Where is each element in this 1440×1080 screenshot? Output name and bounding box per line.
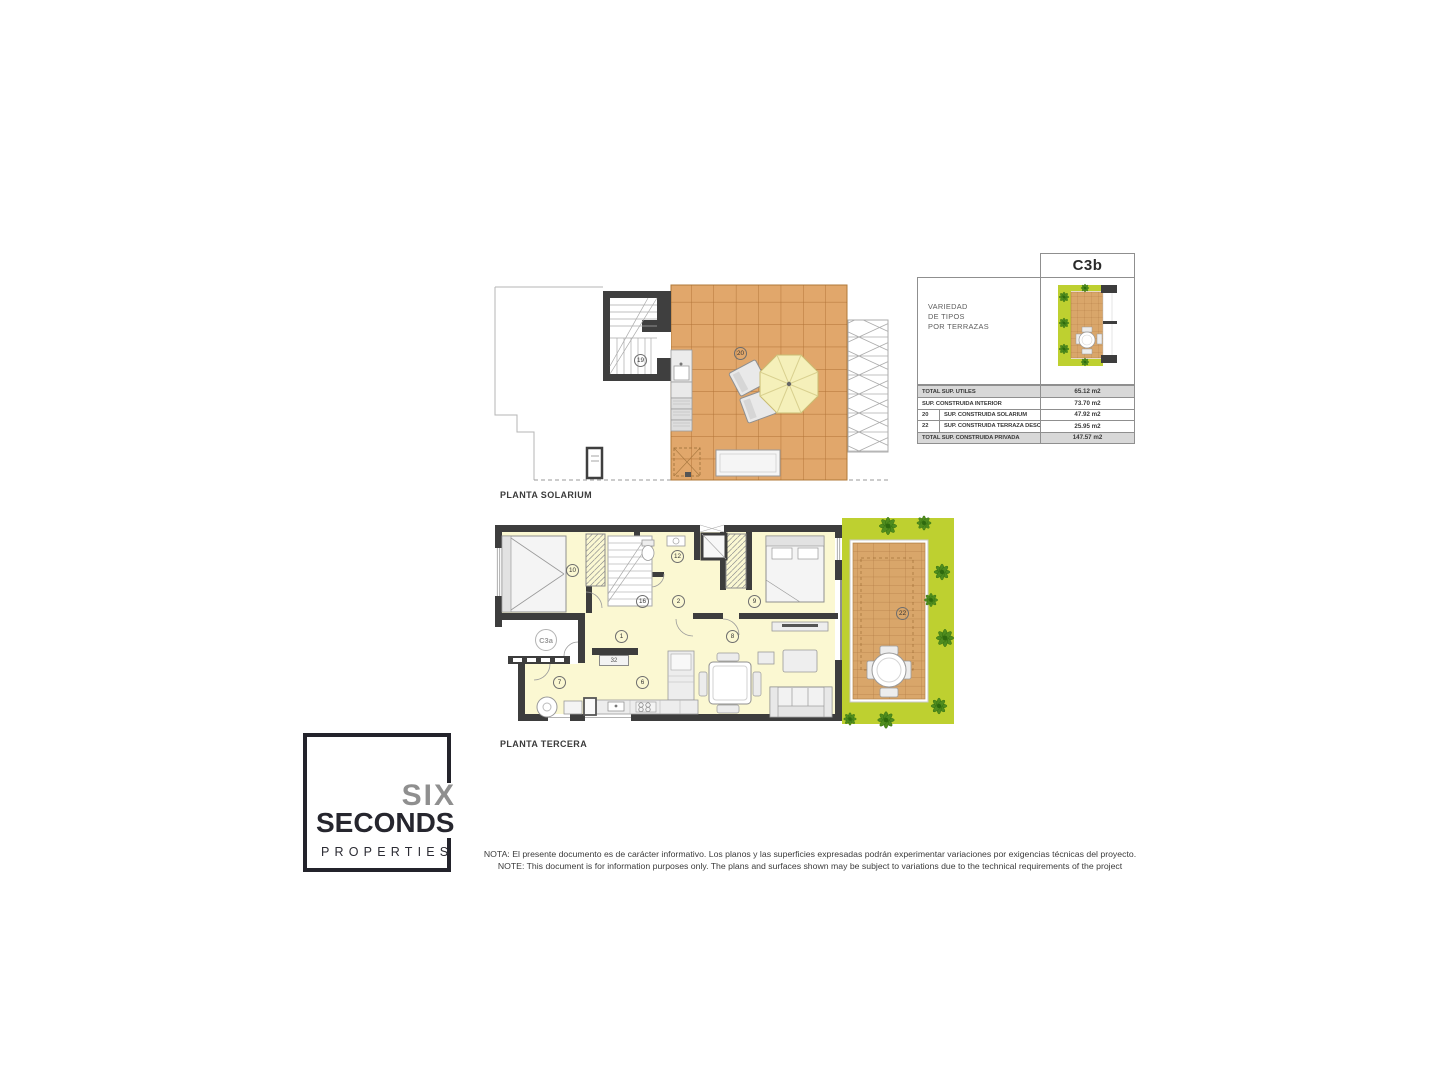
variety-line: DE TIPOS — [928, 312, 1040, 322]
logo-frame-left — [303, 733, 307, 872]
plan-title-solarium: PLANTA SOLARIUM — [500, 490, 592, 500]
area-row-value: 25.95 m2 — [1040, 421, 1134, 431]
logo-frame-right-upper — [447, 733, 451, 783]
room-label-stairwell: 19 — [634, 354, 647, 367]
area-row: 20 SUP. CONSTRUIDA SOLARIUM 47.92 m2 — [918, 409, 1134, 420]
room-label-6: 6 — [636, 676, 649, 689]
stairwell — [603, 291, 671, 381]
parasol-icon — [760, 355, 818, 413]
disclaimer-note: NOTA: El presente documento es de caráct… — [460, 849, 1160, 872]
area-row-num: 20 — [918, 410, 940, 420]
area-row: TOTAL SUP. CONSTRUIDA PRIVADA 147.57 m2 — [918, 432, 1134, 443]
plan-title-tercera: PLANTA TERCERA — [500, 739, 587, 749]
side-table — [758, 652, 774, 664]
area-row: SUP. CONSTRUIDA INTERIOR 73.70 m2 — [918, 397, 1134, 408]
logo-frame-top — [303, 733, 451, 737]
area-row-label: SUP. CONSTRUIDA SOLARIUM — [940, 412, 1040, 418]
area-row-label: TOTAL SUP. UTILES — [918, 389, 1040, 395]
area-row-value: 147.57 m2 — [1040, 433, 1134, 443]
type-box: C3b — [1040, 253, 1135, 385]
logo-word-properties: PROPERTIES — [321, 846, 453, 859]
room-label-solarium: 20 — [734, 347, 747, 360]
miniplan-drawing — [1057, 283, 1119, 367]
area-row: TOTAL SUP. UTILES 65.12 m2 — [918, 386, 1134, 397]
area-row-label: SUP. CONSTRUIDA INTERIOR — [918, 401, 1040, 407]
type-code: C3b — [1041, 254, 1134, 278]
area-row-label: TOTAL SUP. CONSTRUIDA PRIVADA — [918, 435, 1040, 441]
disclaimer-es: NOTA: El presente documento es de caráct… — [460, 849, 1160, 861]
planta-tercera-drawing — [490, 510, 960, 755]
room-label-1: 1 — [615, 630, 628, 643]
brochure-page: 19 20 PLANTA SOLARIUM VARIEDAD DE TIPOS … — [0, 0, 1440, 1080]
terrace — [842, 516, 954, 729]
washbasin — [667, 536, 685, 546]
area-row: 22 SUP. CONSTRUIDA TERRAZA DESCUBIERTA 2… — [918, 420, 1134, 431]
variety-line: POR TERRAZAS — [928, 322, 1040, 332]
armchair — [783, 650, 817, 672]
room-label-8: 8 — [726, 630, 739, 643]
area-row-num: 22 — [918, 421, 940, 431]
bed — [766, 536, 824, 602]
area-row-value: 65.12 m2 — [1040, 386, 1134, 397]
wardrobe — [726, 534, 746, 588]
sofa — [770, 687, 832, 717]
variety-box: VARIEDAD DE TIPOS POR TERRAZAS — [917, 277, 1041, 385]
areas-table: TOTAL SUP. UTILES 65.12 m2 SUP. CONSTRUI… — [917, 385, 1135, 444]
type-miniplan — [1041, 283, 1134, 373]
outdoor-kitchenette — [671, 350, 692, 431]
planta-solarium-drawing — [490, 280, 890, 490]
variety-line: VARIEDAD — [928, 302, 1040, 312]
wardrobe — [586, 534, 605, 586]
unit-code-badge: C3a — [535, 629, 557, 651]
shower — [702, 534, 726, 559]
room-label-12: 12 — [671, 550, 684, 563]
room-label-16: 16 — [636, 595, 649, 608]
planter-bench — [716, 450, 780, 476]
room-label-2: 2 — [672, 595, 685, 608]
area-row-value: 73.70 m2 — [1040, 398, 1134, 408]
logo-word-seconds: SECONDS — [316, 809, 454, 837]
bed — [502, 536, 566, 612]
area-row-label: SUP. CONSTRUIDA TERRAZA DESCUBIERTA — [940, 423, 1040, 429]
logo-frame-bottom — [303, 868, 451, 872]
chimney — [587, 448, 602, 478]
room-label-10: 10 — [566, 564, 579, 577]
pergola-lattice — [848, 320, 888, 452]
room-label-7: 7 — [553, 676, 566, 689]
area-row-value: 47.92 m2 — [1040, 410, 1134, 420]
toilet — [642, 540, 654, 561]
room-label-9: 9 — [748, 595, 761, 608]
tv-sideboard — [772, 622, 828, 631]
disclaimer-en: NOTE: This document is for information p… — [460, 861, 1160, 873]
room-label-22: 22 — [896, 607, 909, 620]
room-label-32: 32 — [599, 655, 629, 666]
